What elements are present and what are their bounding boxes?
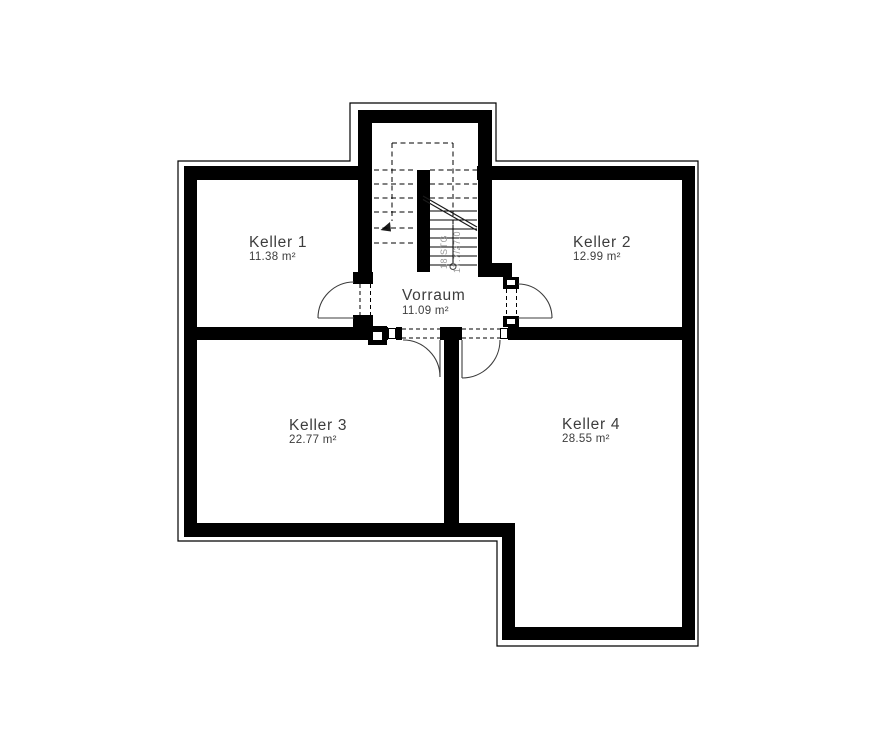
door-jamb-inset (507, 280, 515, 285)
door-opening-keller1 (360, 284, 371, 315)
door-opening-keller4 (462, 329, 500, 338)
door-jamb-inset (507, 319, 515, 324)
floor-plan-drawing: 18 STG 17.7/27.0 Keller 1 11.38 m² Kelle… (0, 0, 895, 747)
door-jamb (353, 272, 373, 284)
door-opening-keller2 (507, 289, 517, 316)
floor-plan-page: 18 STG 17.7/27.0 Keller 1 11.38 m² Kelle… (0, 0, 895, 747)
step-west-wall (502, 537, 515, 640)
top-wall-east (477, 166, 695, 180)
stair-spine-wall (417, 170, 430, 272)
door-jamb (501, 329, 508, 339)
door-swing-arc-keller4 (462, 340, 500, 378)
stair-steps-label: 18 STG (439, 235, 449, 269)
door-swing-arc-keller2 (518, 284, 552, 318)
door-opening-keller3 (402, 329, 440, 338)
room-label-vorraum: Vorraum (402, 287, 465, 304)
stair-treads-left-flight (374, 170, 415, 243)
room-area-keller4: 28.55 m² (562, 433, 610, 445)
divider-wall-keller3-keller4 (444, 340, 459, 523)
room-label-keller3: Keller 3 (289, 417, 347, 434)
south-wall-keller4 (502, 627, 695, 640)
door-jamb (389, 329, 396, 339)
middle-wall-west (184, 327, 388, 340)
room-area-keller2: 12.99 m² (573, 251, 621, 263)
room-label-keller4: Keller 4 (562, 416, 620, 433)
room-label-keller1: Keller 1 (249, 234, 307, 251)
middle-wall-center-stub (440, 327, 462, 340)
west-wall (184, 166, 197, 537)
stair-cut-line (423, 196, 477, 231)
room-area-keller1: 11.38 m² (249, 251, 296, 263)
east-wall (682, 166, 695, 640)
middle-wall-stub (396, 327, 402, 340)
door-swing-arc-keller1 (318, 282, 354, 318)
stair-annex-north-wall (358, 110, 492, 123)
stair-direction-arrow (381, 222, 392, 232)
stair-east-corner-wall (478, 263, 512, 277)
middle-wall-east (508, 327, 695, 340)
room-area-keller3: 22.77 m² (289, 434, 337, 446)
stair-west-wall (358, 123, 372, 272)
door-swing-arc-keller3 (403, 340, 440, 377)
stair-dimension-label: 17.7/27.0 (452, 231, 462, 273)
south-wall-keller3 (184, 523, 515, 537)
chimney-flue (373, 332, 382, 340)
room-area-vorraum: 11.09 m² (402, 305, 449, 317)
interior-walls (184, 123, 695, 523)
top-wall-west (184, 166, 372, 180)
door-jamb (353, 315, 373, 327)
room-label-keller2: Keller 2 (573, 234, 631, 251)
chimney-shaft (368, 326, 387, 345)
stair-east-wall (478, 123, 492, 263)
building-outline (178, 103, 698, 646)
